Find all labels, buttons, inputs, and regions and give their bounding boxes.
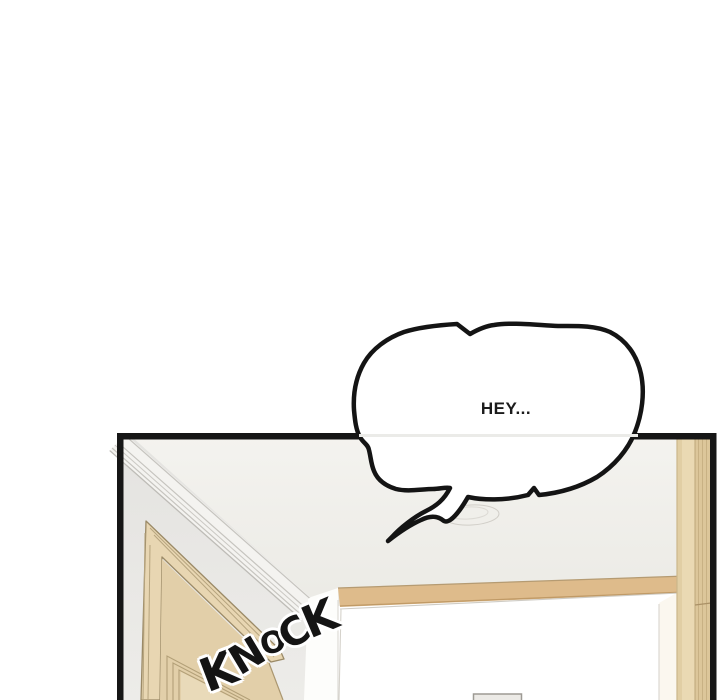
right-frame-pillar bbox=[677, 433, 711, 700]
comic-panel-art bbox=[0, 0, 720, 700]
open-doorway bbox=[304, 576, 686, 700]
webtoon-page: HEY... KNOCK bbox=[0, 0, 720, 700]
pillar-shade bbox=[677, 433, 682, 700]
speech-bubble-text: HEY... bbox=[470, 399, 542, 419]
switch-plate bbox=[474, 694, 522, 700]
panel-border-right bbox=[710, 433, 717, 700]
panel-border-left bbox=[117, 433, 124, 700]
pillar-dark-strip bbox=[695, 433, 711, 700]
